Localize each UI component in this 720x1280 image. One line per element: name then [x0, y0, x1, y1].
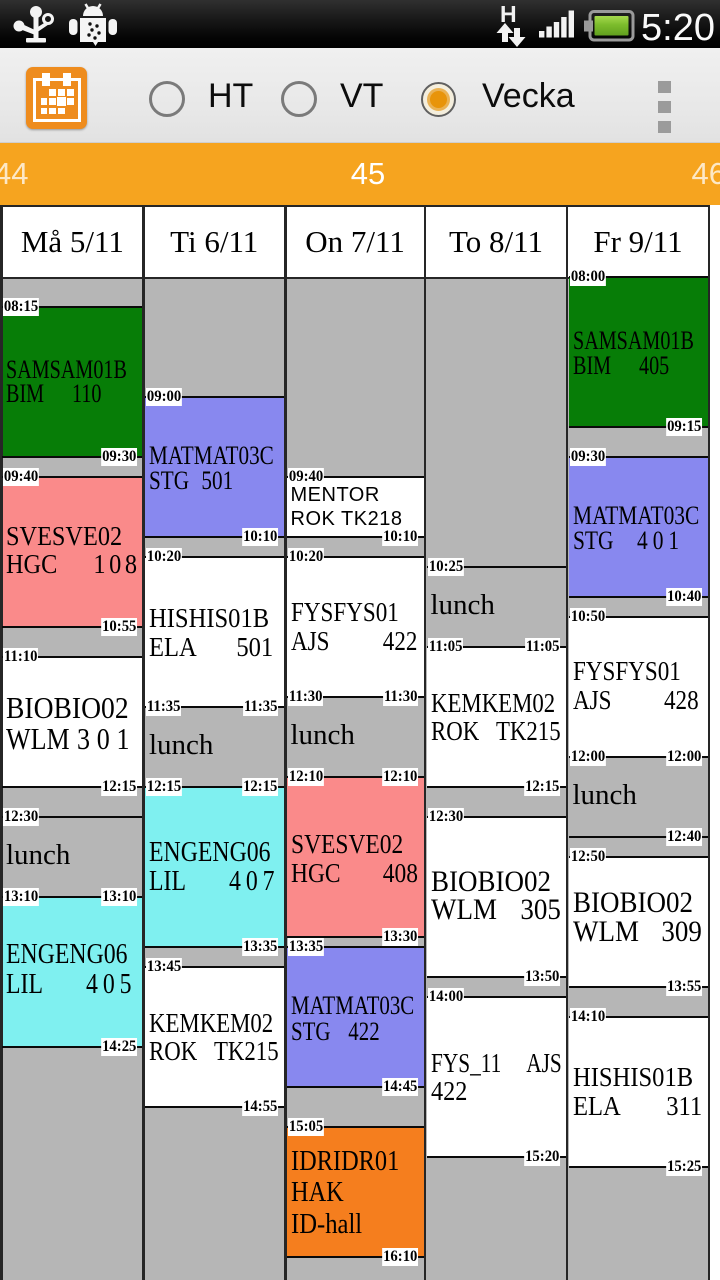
svg-text:H: H [500, 1, 517, 27]
svg-text:5:20: 5:20 [641, 7, 715, 48]
